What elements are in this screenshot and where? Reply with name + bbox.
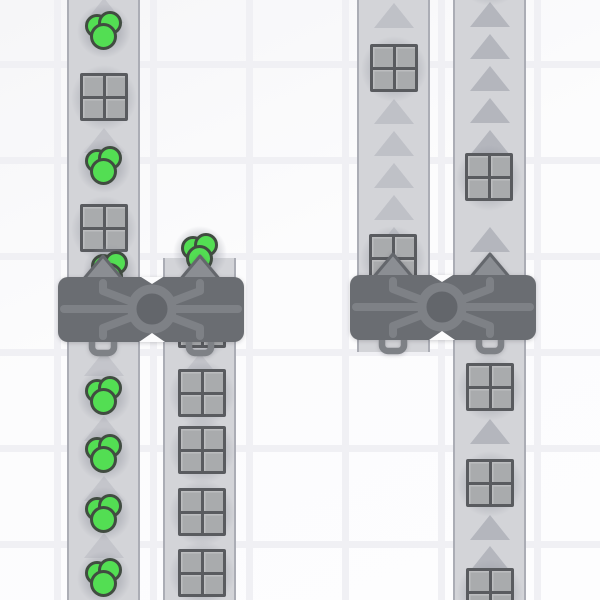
green-circles-shape-icon xyxy=(84,433,124,473)
belt-direction-arrow-up-icon xyxy=(470,419,510,444)
balancer-machine[interactable] xyxy=(350,251,536,355)
conveyor-scene[interactable] xyxy=(0,0,600,600)
green-circles-shape-icon xyxy=(84,375,124,415)
grid-line-vertical xyxy=(246,0,253,600)
balancer-machine[interactable] xyxy=(58,253,244,357)
belt-direction-arrow-up-icon xyxy=(374,3,414,28)
belt-direction-arrow-up-icon xyxy=(470,66,510,91)
belt-direction-arrow-up-icon xyxy=(470,34,510,59)
grid-line-vertical xyxy=(342,0,349,600)
gray-square-shape-icon xyxy=(466,459,514,507)
green-circles-shape-icon xyxy=(84,557,124,597)
belt-direction-arrow-up-icon xyxy=(470,227,510,252)
green-circles-shape-icon xyxy=(84,493,124,533)
green-circles-shape-icon xyxy=(84,10,124,50)
belt-direction-arrow-up-icon xyxy=(374,99,414,124)
green-circles-shape-icon xyxy=(84,145,124,185)
belt-direction-arrow-up-icon xyxy=(374,163,414,188)
gray-square-shape-icon xyxy=(466,568,514,600)
belt-direction-arrow-up-icon xyxy=(374,131,414,156)
belt-direction-arrow-up-icon xyxy=(470,515,510,540)
gray-square-shape-icon xyxy=(178,426,226,474)
gray-square-shape-icon xyxy=(466,363,514,411)
gray-square-shape-icon xyxy=(178,549,226,597)
gray-square-shape-icon xyxy=(370,44,418,92)
belt-direction-arrow-up-icon xyxy=(470,98,510,123)
gray-square-shape-icon xyxy=(178,369,226,417)
gray-square-shape-icon xyxy=(178,488,226,536)
belt-direction-arrow-up-icon xyxy=(374,195,414,220)
gray-square-shape-icon xyxy=(465,153,513,201)
gray-square-shape-icon xyxy=(80,73,128,121)
